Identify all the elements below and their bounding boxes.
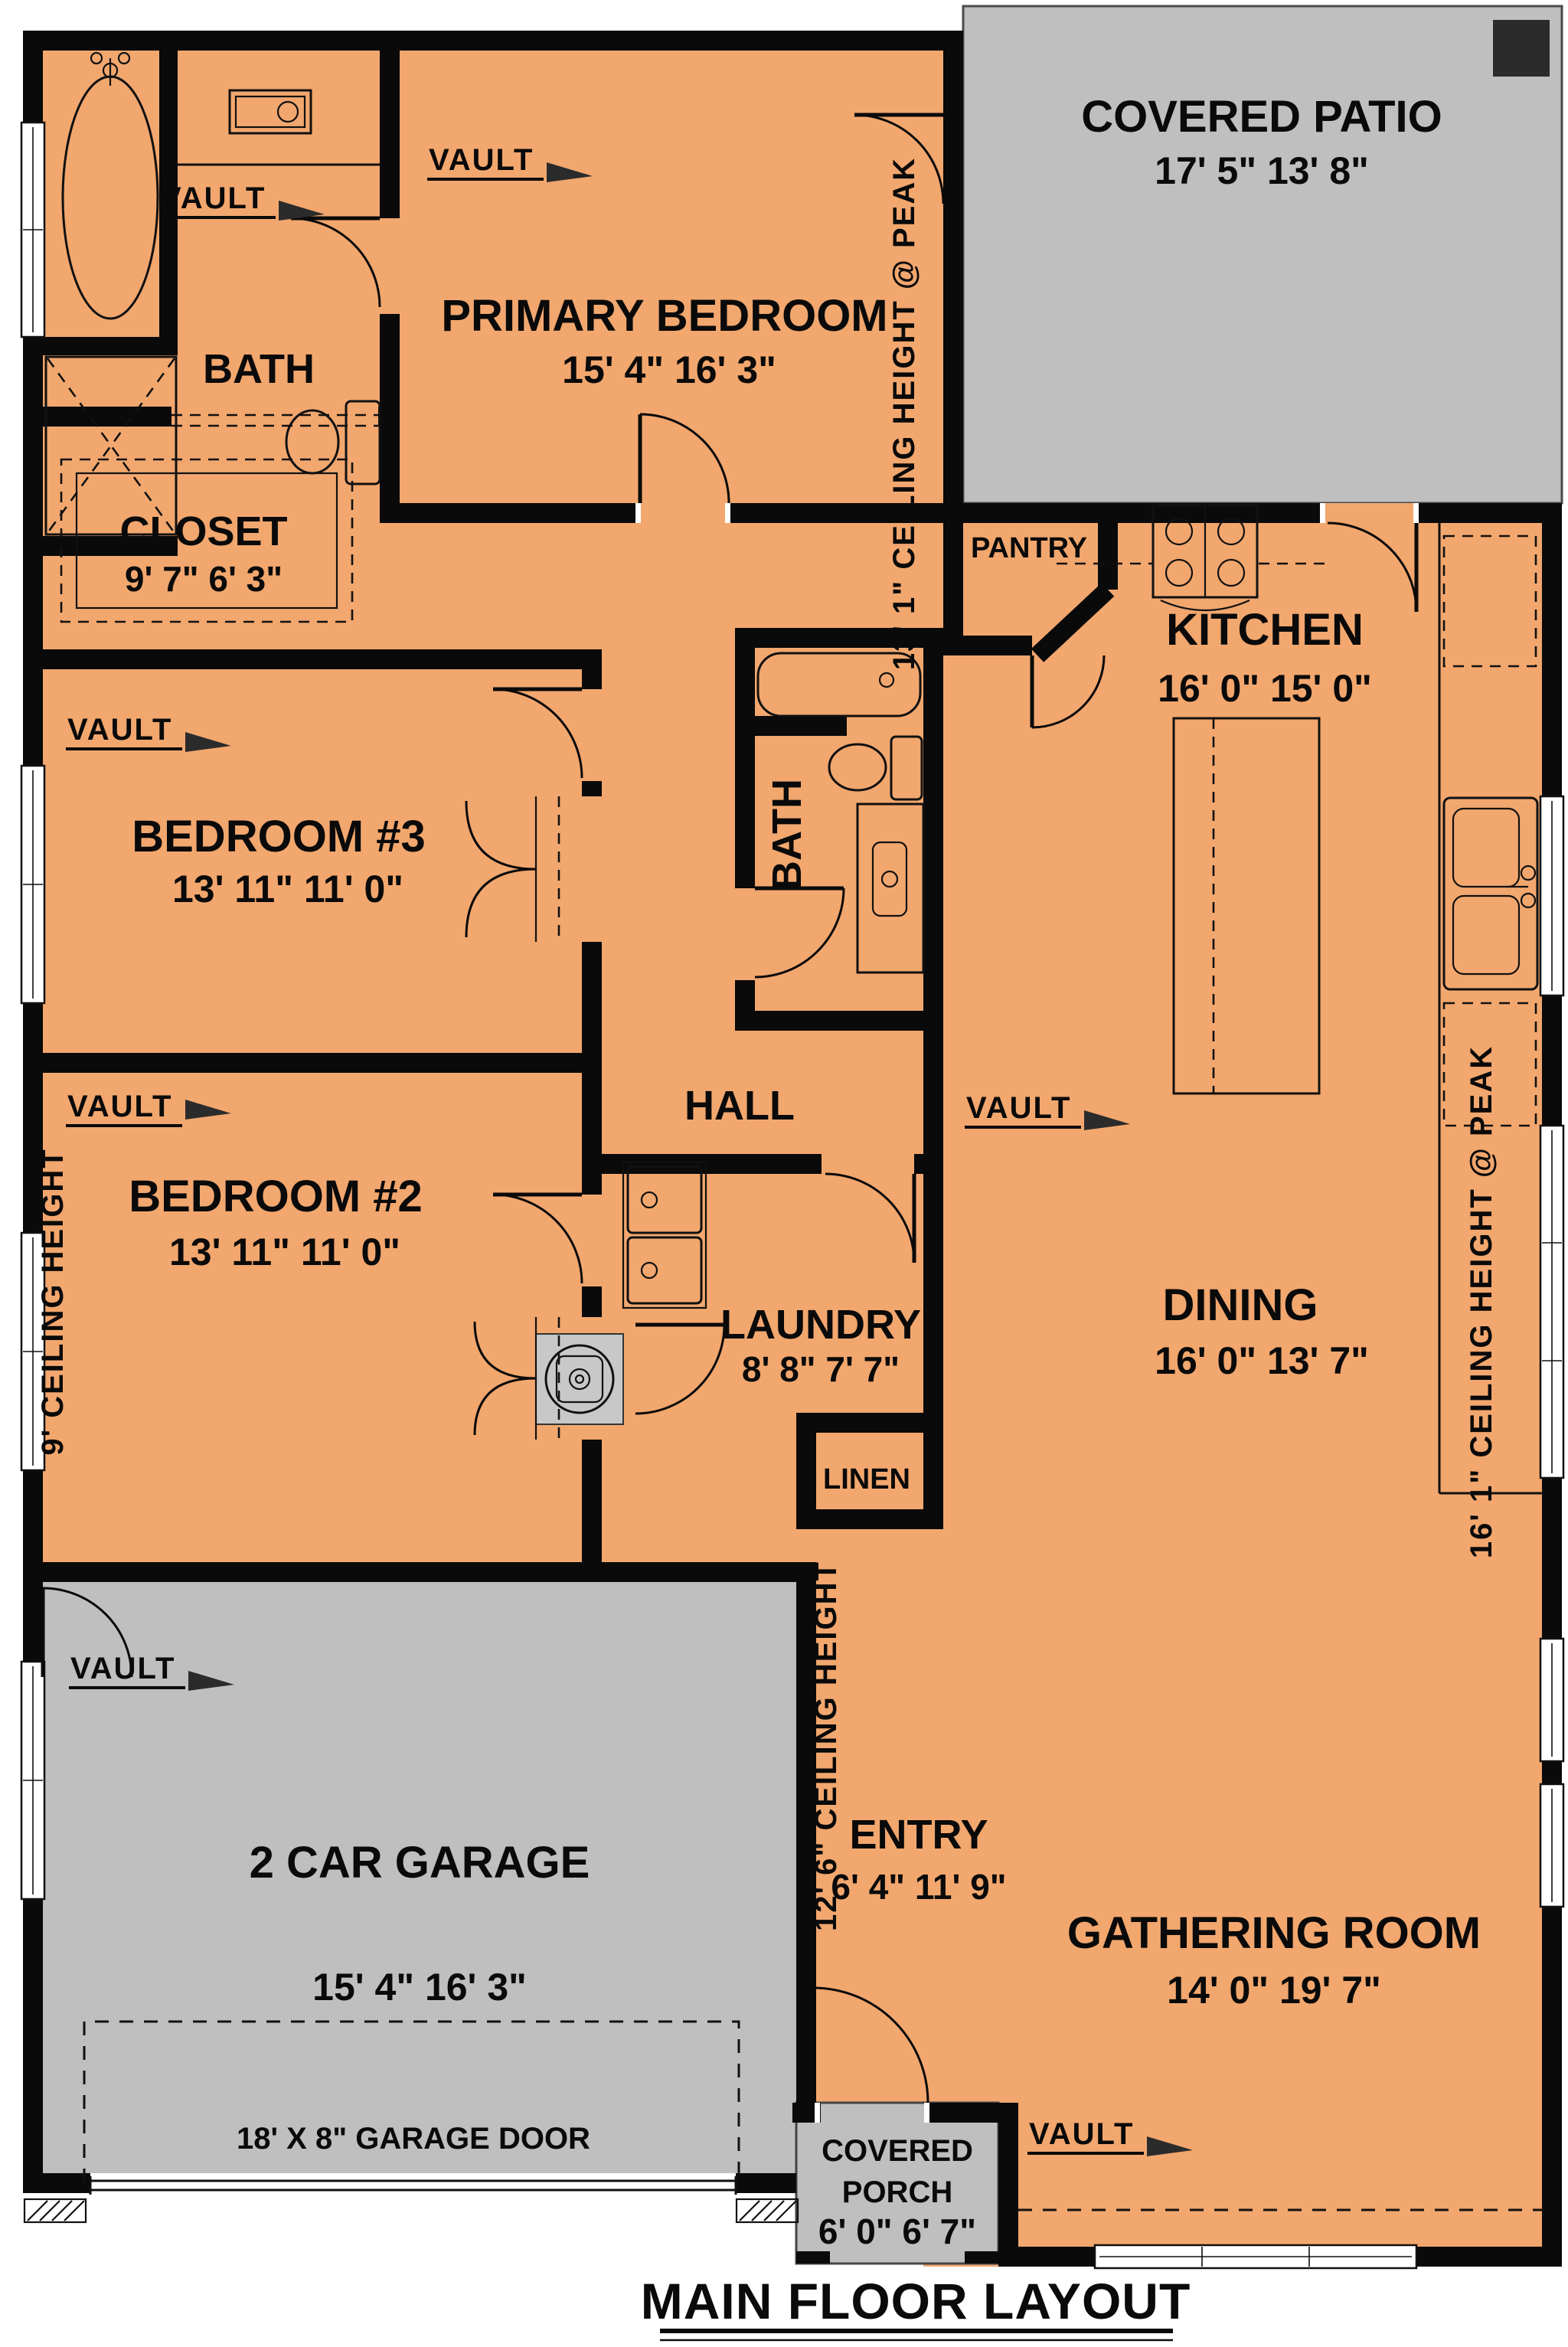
window — [1540, 1784, 1563, 1907]
label-entry: ENTRY — [849, 1812, 988, 1858]
dims-closet: 9' 7" 6' 3" — [125, 559, 283, 599]
patio-post — [1493, 20, 1550, 77]
label-gathering-room: GATHERING ROOM — [1067, 1908, 1481, 1958]
ceiling-height-13: 13' 1" CEILING HEIGHT @ PEAK — [887, 157, 921, 670]
dims-entry: 6' 4" 11' 9" — [831, 1867, 1006, 1907]
label-pantry: PANTRY — [971, 532, 1087, 564]
dims-primary-bedroom: 15' 4" 16' 3" — [562, 348, 776, 391]
label-laundry: LAUNDRY — [720, 1302, 921, 1348]
label-kitchen: KITCHEN — [1166, 605, 1364, 655]
svg-text:VAULT: VAULT — [429, 143, 534, 177]
window — [21, 766, 44, 1003]
label-bedroom-3: BEDROOM #3 — [132, 812, 426, 861]
dims-bedroom-3: 13' 11" 11' 0" — [172, 868, 403, 910]
label-covered-patio: COVERED PATIO — [1081, 92, 1442, 142]
window — [1540, 1639, 1563, 1761]
dims-kitchen: 16' 0" 15' 0" — [1158, 667, 1372, 710]
ceiling-height-9: 9' CEILING HEIGHT — [36, 1148, 70, 1455]
label-bath-primary: BATH — [203, 346, 315, 392]
svg-text:VAULT: VAULT — [966, 1091, 1071, 1125]
door-jamb — [725, 503, 730, 523]
label-linen: LINEN — [823, 1463, 910, 1495]
door-jamb — [924, 2103, 929, 2123]
covered-patio-area — [963, 6, 1562, 503]
ceiling-height-16: 16' 1" CEILING HEIGHT @ PEAK — [1465, 1045, 1498, 1558]
label-primary-bedroom: PRIMARY BEDROOM — [441, 291, 887, 341]
svg-text:VAULT: VAULT — [67, 713, 172, 747]
water-heater-pad — [536, 1334, 623, 1424]
hatch-mark — [24, 2199, 86, 2222]
garage-door — [90, 2176, 736, 2195]
svg-text:VAULT: VAULT — [161, 181, 266, 215]
label-bedroom-2: BEDROOM #2 — [129, 1172, 423, 1221]
dims-dining: 16' 0" 13' 7" — [1155, 1339, 1369, 1382]
door-jamb — [635, 503, 641, 523]
svg-text:VAULT: VAULT — [67, 1090, 172, 1123]
dims-laundry: 8' 8" 7' 7" — [742, 1349, 900, 1389]
label-bath-2: BATH — [764, 779, 810, 891]
dims-covered-patio: 17' 5" 13' 8" — [1155, 149, 1369, 192]
window — [1540, 1126, 1563, 1478]
label-dining: DINING — [1163, 1280, 1318, 1330]
dims-gathering-room: 14' 0" 19' 7" — [1167, 1969, 1381, 2012]
ceiling-height-12: 12' 6" CEILING HEIGHT — [809, 1561, 843, 1931]
title-block: MAIN FLOOR LAYOUT — [641, 2273, 1191, 2340]
svg-text:VAULT: VAULT — [70, 1652, 175, 1685]
dims-bedroom-2: 13' 11" 11' 0" — [169, 1231, 400, 1273]
page-title: MAIN FLOOR LAYOUT — [641, 2273, 1191, 2329]
svg-text:VAULT: VAULT — [1029, 2117, 1134, 2151]
label-covered-porch-2: PORCH — [842, 2175, 952, 2209]
label-garage: 2 CAR GARAGE — [250, 1838, 590, 1888]
hatch-mark — [737, 2199, 798, 2222]
window — [21, 1662, 44, 1899]
window — [21, 123, 44, 337]
door-jamb — [1413, 503, 1419, 523]
window — [1095, 2245, 1416, 2268]
floor-plan: BATH PRIMARY BEDROOM 15' 4" 16' 3" COVER… — [0, 0, 1568, 2347]
door-jamb — [815, 2103, 820, 2123]
door-jamb — [1320, 503, 1325, 523]
label-closet: CLOSET — [119, 508, 287, 554]
window — [1540, 796, 1563, 995]
label-covered-porch-1: COVERED — [822, 2134, 973, 2168]
label-hall: HALL — [684, 1083, 795, 1129]
label-garage-door: 18' X 8" GARAGE DOOR — [237, 2122, 590, 2156]
dims-garage: 15' 4" 16' 3" — [312, 1966, 527, 2009]
dims-covered-porch: 6' 0" 6' 7" — [818, 2211, 976, 2251]
